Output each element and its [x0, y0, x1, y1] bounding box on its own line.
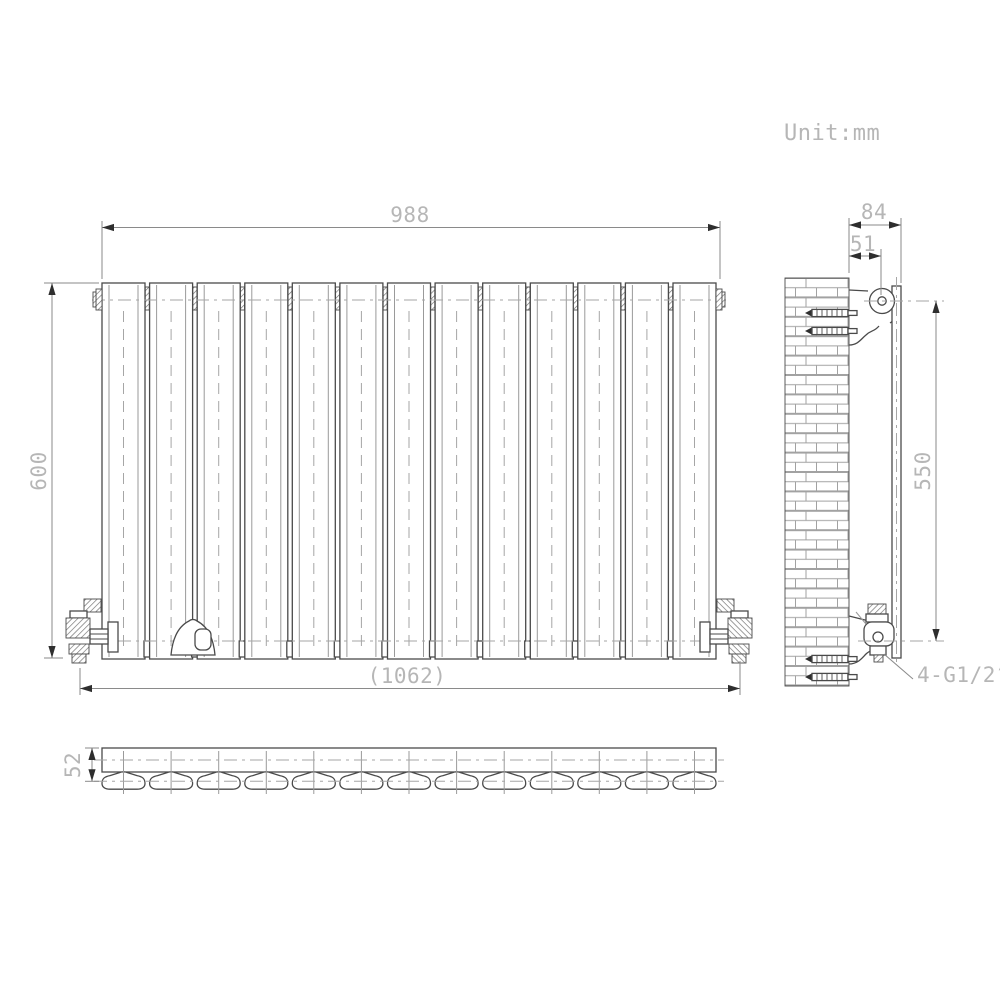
panel-top-joint [574, 287, 578, 310]
panel-top-joint [526, 287, 530, 310]
unit-note: Unit:mm [784, 121, 880, 146]
dim-mount-spacing-label: 550 [911, 451, 935, 490]
dim-panel-depth-label: 52 [61, 752, 85, 778]
top-wall-anchor-2 [805, 327, 857, 334]
dim-depth-label: 84 [861, 200, 887, 224]
dimension-arrow [932, 629, 939, 641]
dim-pipe-offset-label: 51 [850, 232, 876, 256]
dimension-arrow [102, 224, 114, 231]
left-end-plug-cap [93, 292, 96, 307]
drawing-canvas: 988 600 (1062) 84 51 550 52 4-G1/2″ Unit… [0, 0, 1000, 1000]
panel-top-joint [336, 287, 340, 310]
dim-width-label: 988 [390, 203, 429, 227]
right-end-plug-cap [722, 292, 725, 307]
thread-callout-label: 4-G1/2″ [917, 663, 1000, 687]
panel-top-joint [431, 287, 435, 310]
bottom-wall-anchor-1 [805, 655, 857, 662]
dimension-arrow [80, 685, 92, 692]
top-wall-anchor-1 [805, 309, 857, 316]
dimension-arrow [708, 224, 720, 231]
dimension-arrow [48, 646, 55, 658]
panel-top-joint [193, 287, 197, 310]
right-end-plug [716, 289, 722, 310]
bottom-wall-anchor-2 [805, 673, 857, 680]
dimension-arrow [88, 748, 95, 760]
dimension-arrow [48, 283, 55, 295]
panel-top-joint [145, 287, 149, 310]
panel-top-joint [383, 287, 387, 310]
bottom-section-view [94, 748, 724, 794]
brick-wall [785, 278, 849, 686]
dimension-arrow [88, 769, 95, 781]
floor-support-slot [195, 629, 211, 650]
bottom-connection-valve [864, 604, 894, 662]
dim-overall-width-label: (1062) [368, 664, 447, 688]
panel-top-joint [621, 287, 625, 310]
front-view [66, 283, 752, 663]
left-end-plug [96, 289, 102, 310]
front-panel-array [102, 283, 716, 659]
panel-top-joint [288, 287, 292, 310]
dimension-arrow [728, 685, 740, 692]
dimension-arrow [889, 221, 901, 228]
panel-top-joint [669, 287, 673, 310]
dim-height-label: 600 [27, 451, 51, 490]
dimension-arrow [932, 301, 939, 313]
radiator-technical-drawing: 988 600 (1062) 84 51 550 52 4-G1/2″ Unit… [0, 0, 1000, 1000]
dimension-arrow [849, 221, 861, 228]
panel-top-joint [241, 287, 245, 310]
panel-top-joint [478, 287, 482, 310]
